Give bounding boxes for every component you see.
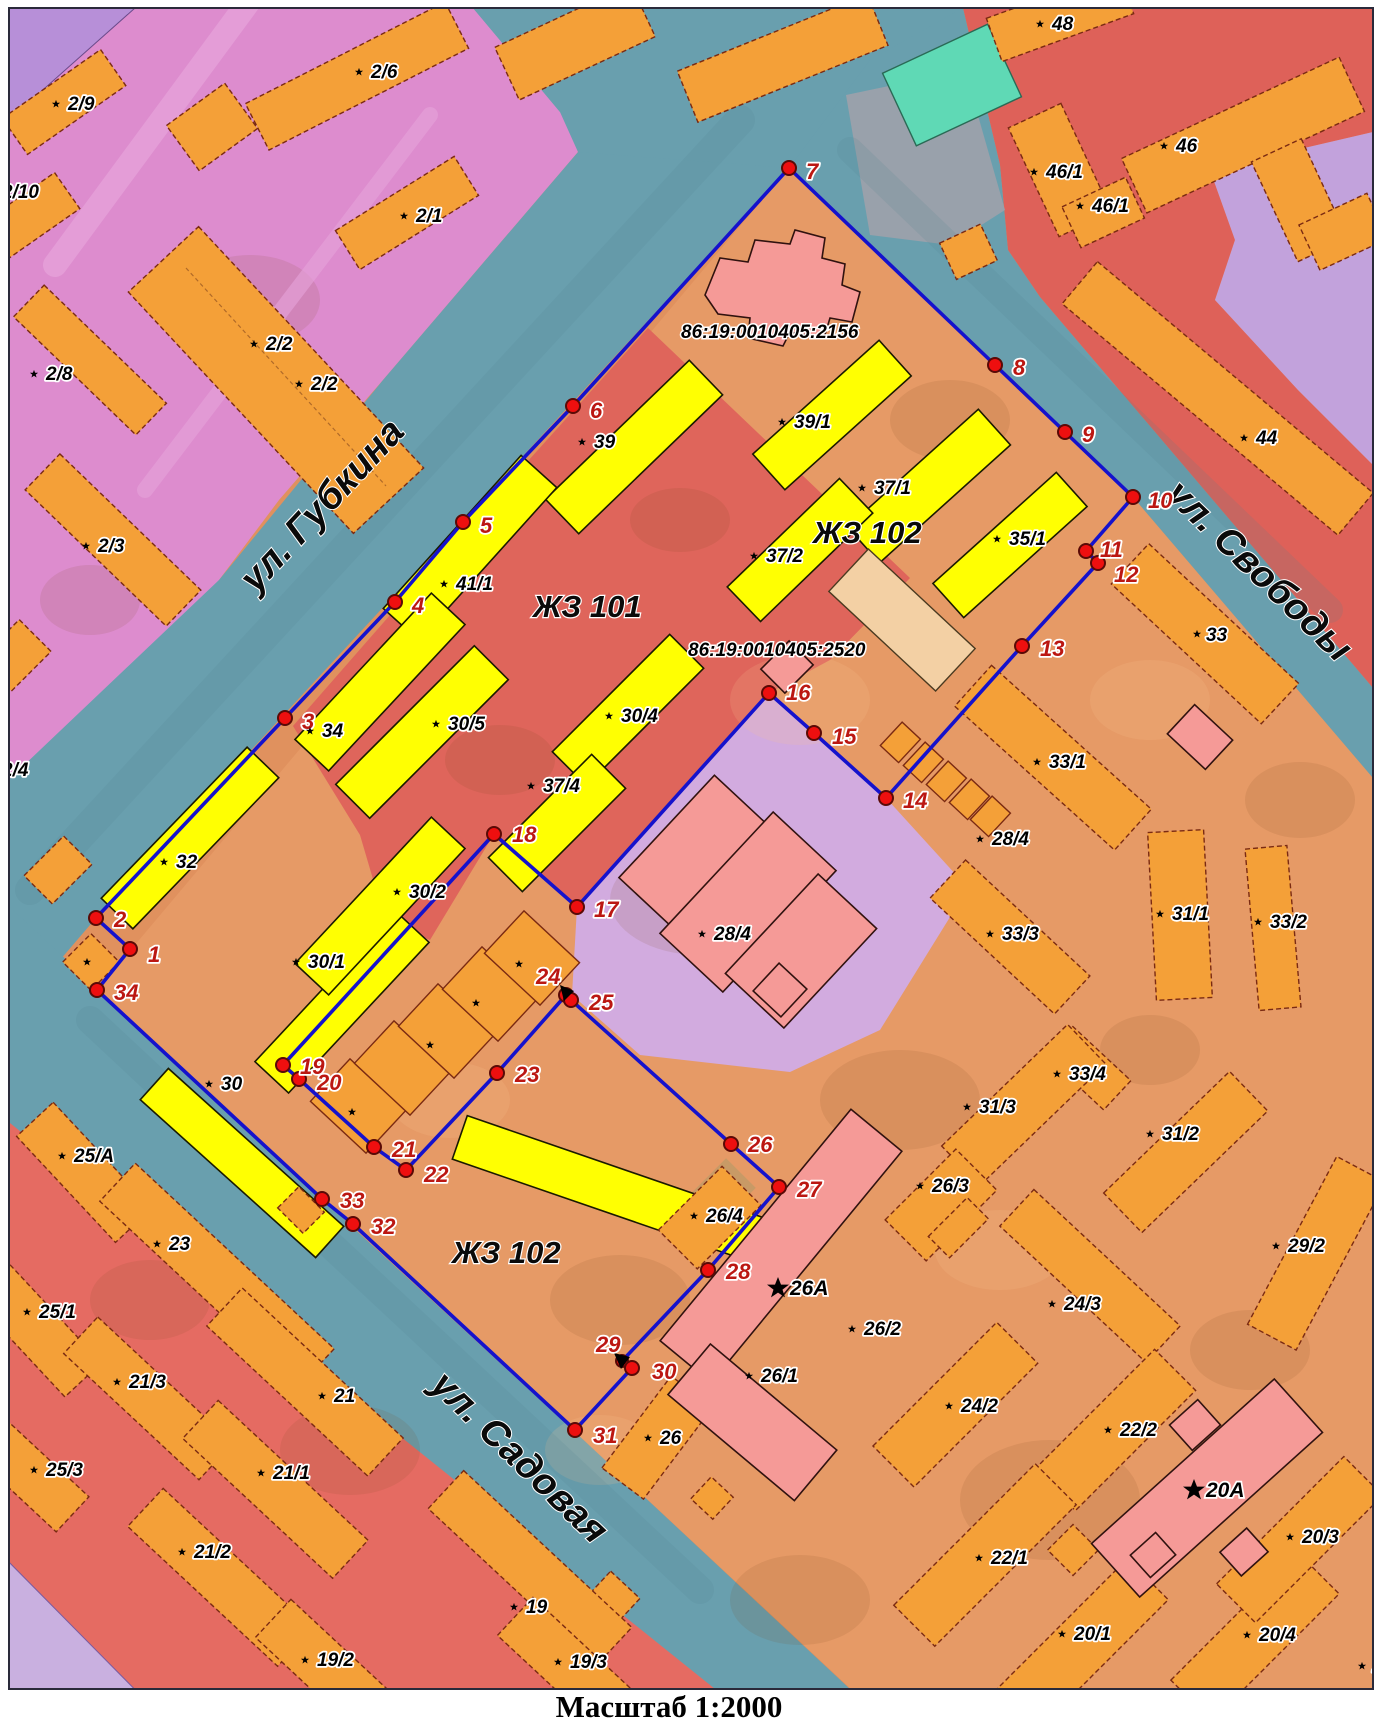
svg-text:46/1: 46/1 — [1091, 196, 1129, 217]
svg-text:24/3: 24/3 — [1063, 1294, 1101, 1315]
svg-text:22/2: 22/2 — [1119, 1420, 1157, 1441]
svg-text:21: 21 — [333, 1386, 355, 1407]
svg-text:33/1: 33/1 — [1049, 752, 1086, 773]
svg-text:33: 33 — [1206, 625, 1228, 646]
svg-text:7: 7 — [806, 159, 820, 184]
svg-text:14: 14 — [903, 788, 927, 813]
svg-text:11: 11 — [1100, 537, 1123, 562]
svg-text:21: 21 — [391, 1137, 416, 1162]
svg-text:28/4: 28/4 — [713, 924, 751, 945]
svg-text:37/1: 37/1 — [874, 478, 911, 499]
svg-text:2/10: 2/10 — [1, 182, 39, 203]
svg-text:31/3: 31/3 — [979, 1097, 1016, 1118]
svg-text:20/3: 20/3 — [1301, 1527, 1339, 1548]
svg-text:25/3: 25/3 — [45, 1460, 83, 1481]
svg-text:2: 2 — [113, 907, 127, 932]
svg-text:20/4: 20/4 — [1258, 1625, 1296, 1646]
svg-text:10: 10 — [1148, 488, 1173, 513]
svg-text:31/2: 31/2 — [1162, 1124, 1199, 1145]
svg-text:2/3: 2/3 — [97, 536, 125, 557]
svg-text:28: 28 — [725, 1259, 751, 1284]
svg-text:30/4: 30/4 — [621, 706, 658, 727]
svg-text:30: 30 — [652, 1359, 677, 1384]
svg-text:23: 23 — [514, 1062, 539, 1087]
svg-text:46/1: 46/1 — [1045, 162, 1083, 183]
svg-text:26A: 26A — [789, 1277, 829, 1300]
svg-text:29: 29 — [595, 1332, 621, 1357]
svg-text:20: 20 — [316, 1070, 342, 1095]
svg-text:46: 46 — [1175, 136, 1198, 157]
svg-text:5: 5 — [480, 513, 493, 538]
svg-text:ЖЗ 102: ЖЗ 102 — [450, 1235, 561, 1270]
svg-text:25: 25 — [588, 990, 614, 1015]
svg-text:28/4: 28/4 — [991, 829, 1029, 850]
svg-text:30/2: 30/2 — [409, 882, 446, 903]
svg-text:2/2: 2/2 — [265, 334, 293, 355]
svg-text:86:19:0010405:2520: 86:19:0010405:2520 — [688, 640, 866, 661]
svg-text:6: 6 — [590, 398, 603, 423]
svg-text:86:19:0010405:2156: 86:19:0010405:2156 — [681, 322, 859, 343]
svg-text:27: 27 — [796, 1177, 823, 1202]
svg-text:34: 34 — [322, 721, 344, 742]
svg-text:32: 32 — [176, 852, 198, 873]
svg-text:35/1: 35/1 — [1009, 529, 1046, 550]
svg-text:2/8: 2/8 — [45, 364, 73, 385]
svg-text:2/4: 2/4 — [1, 760, 29, 781]
svg-text:24: 24 — [535, 964, 560, 989]
svg-text:39: 39 — [594, 432, 616, 453]
svg-text:41/1: 41/1 — [455, 574, 493, 595]
svg-text:30/1: 30/1 — [308, 952, 345, 973]
svg-text:34: 34 — [114, 980, 138, 1005]
svg-text:18: 18 — [512, 822, 537, 847]
svg-text:2/6: 2/6 — [370, 62, 398, 83]
svg-text:16: 16 — [786, 680, 811, 705]
svg-text:44: 44 — [1255, 428, 1278, 449]
svg-text:33: 33 — [340, 1188, 364, 1213]
svg-text:23: 23 — [168, 1234, 191, 1255]
svg-text:15: 15 — [832, 724, 857, 749]
svg-text:22/1: 22/1 — [990, 1548, 1028, 1569]
svg-text:13: 13 — [1040, 636, 1064, 661]
svg-text:37/4: 37/4 — [543, 776, 580, 797]
svg-text:26/4: 26/4 — [705, 1206, 743, 1227]
svg-text:17: 17 — [594, 897, 620, 922]
svg-text:29/2: 29/2 — [1287, 1236, 1325, 1257]
svg-text:2/9: 2/9 — [67, 94, 95, 115]
svg-text:ЖЗ 101: ЖЗ 101 — [531, 589, 642, 624]
svg-text:8: 8 — [1013, 355, 1026, 380]
svg-text:26: 26 — [747, 1132, 773, 1157]
svg-text:12: 12 — [1114, 562, 1139, 587]
svg-text:39/1: 39/1 — [794, 412, 831, 433]
svg-text:2/1: 2/1 — [415, 206, 442, 227]
svg-text:31/1: 31/1 — [1172, 904, 1209, 925]
svg-text:48: 48 — [1051, 14, 1074, 35]
svg-text:32: 32 — [371, 1214, 396, 1239]
svg-text:1: 1 — [148, 942, 160, 967]
svg-text:21/3: 21/3 — [128, 1372, 166, 1393]
svg-text:26/2: 26/2 — [863, 1319, 901, 1340]
svg-text:26/3: 26/3 — [931, 1176, 969, 1197]
svg-text:26/1: 26/1 — [760, 1366, 798, 1387]
svg-text:9: 9 — [1082, 422, 1095, 447]
svg-text:2/2: 2/2 — [310, 374, 338, 395]
svg-text:19: 19 — [526, 1597, 548, 1618]
svg-text:ЖЗ 102: ЖЗ 102 — [811, 515, 922, 550]
svg-text:19/3: 19/3 — [570, 1652, 607, 1673]
svg-text:20A: 20A — [1205, 1479, 1245, 1502]
svg-text:33/4: 33/4 — [1069, 1064, 1106, 1085]
svg-text:25/1: 25/1 — [38, 1302, 76, 1323]
svg-text:25/A: 25/A — [73, 1146, 114, 1167]
svg-text:22: 22 — [423, 1162, 449, 1187]
svg-text:26: 26 — [659, 1428, 682, 1449]
svg-text:24/2: 24/2 — [960, 1396, 998, 1417]
svg-text:33/2: 33/2 — [1270, 912, 1307, 933]
svg-text:4: 4 — [411, 593, 424, 618]
svg-text:33/3: 33/3 — [1002, 924, 1039, 945]
svg-text:30: 30 — [221, 1074, 243, 1095]
svg-text:19/2: 19/2 — [317, 1650, 354, 1671]
svg-text:20/1: 20/1 — [1073, 1624, 1111, 1645]
svg-text:31: 31 — [593, 1423, 617, 1448]
svg-text:37/2: 37/2 — [766, 546, 803, 567]
svg-text:21/1: 21/1 — [272, 1463, 310, 1484]
svg-text:30/5: 30/5 — [448, 714, 485, 735]
svg-text:21/2: 21/2 — [193, 1542, 231, 1563]
